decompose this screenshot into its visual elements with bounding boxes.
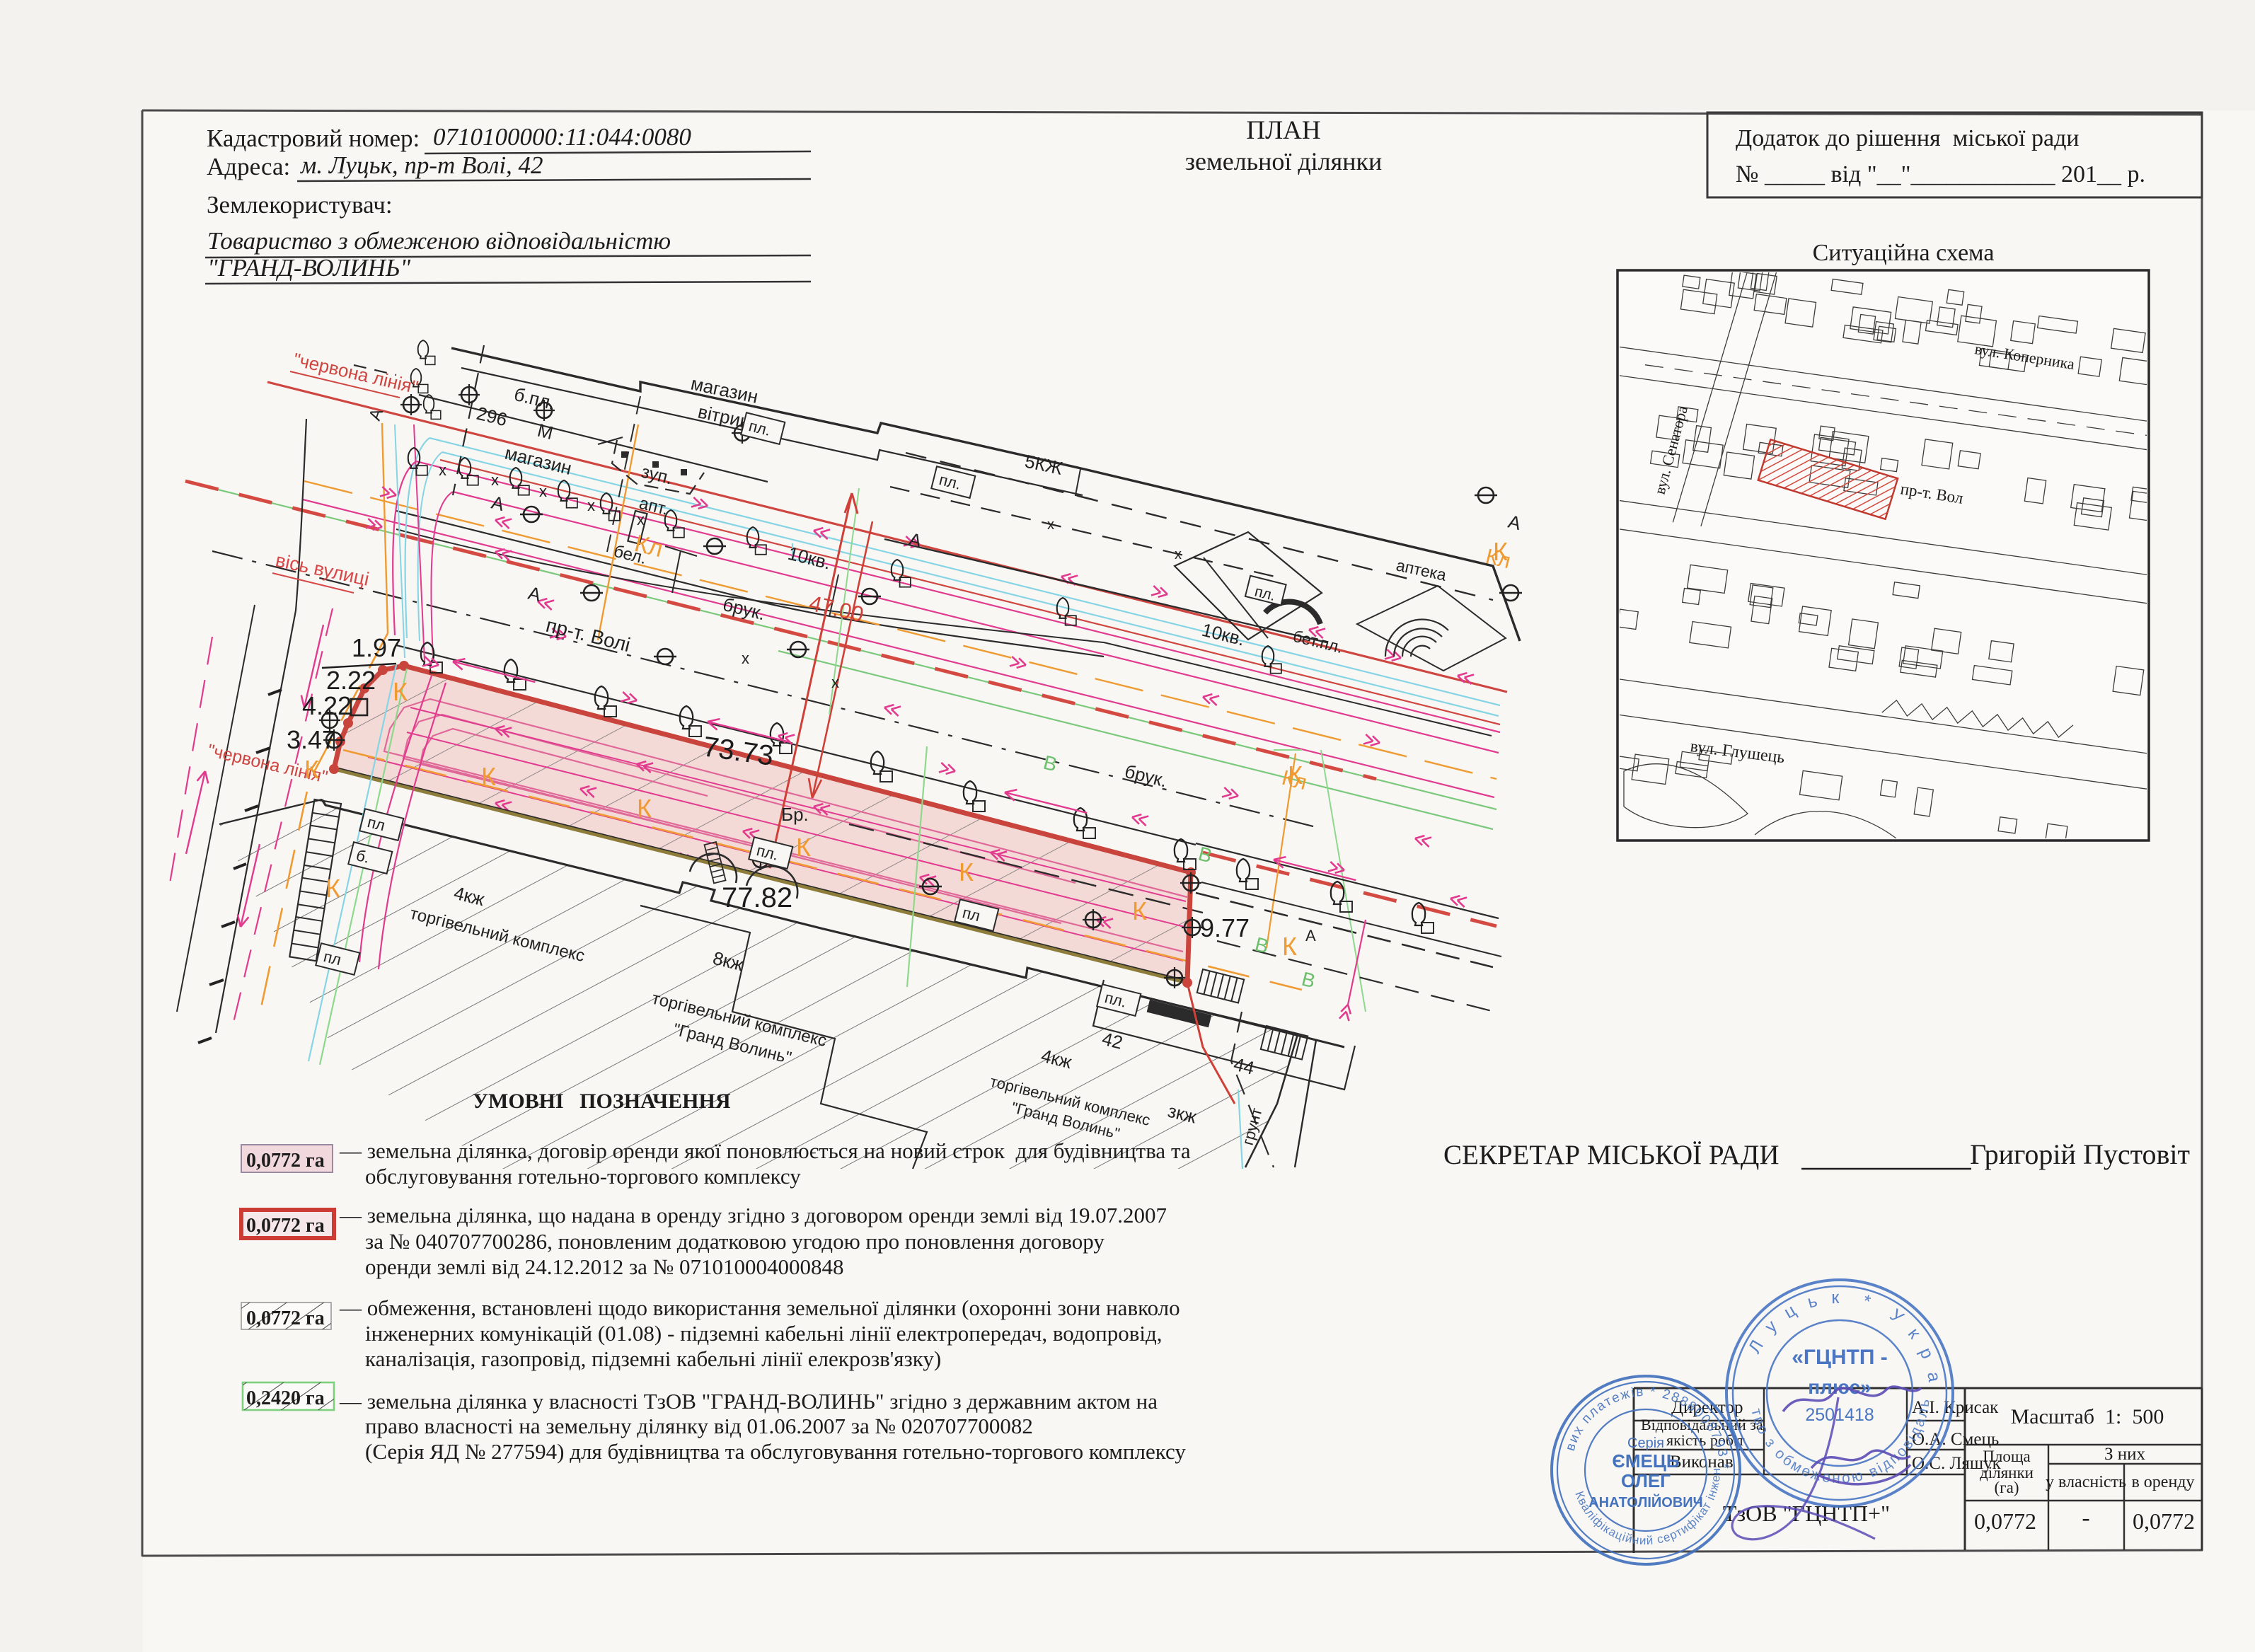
svg-text:Бр.: Бр.: [781, 804, 809, 825]
svg-text:х: х: [439, 461, 446, 479]
svg-text:77.82: 77.82: [722, 882, 792, 913]
svg-text:— обмеження, встановлені щодо: — обмеження, встановлені щодо використан…: [339, 1295, 1180, 1320]
svg-text:2501418: 2501418: [1805, 1405, 1874, 1425]
svg-text:Додаток до рішення міської ра: Додаток до рішення міської ради: [1736, 125, 2080, 151]
svg-text:0710100000:11:044:0080: 0710100000:11:044:0080: [433, 123, 691, 151]
svg-text:0,0772: 0,0772: [1974, 1508, 2036, 1534]
svg-text:"ГРАНД-ВОЛИНЬ": "ГРАНД-ВОЛИНЬ": [207, 254, 411, 282]
svg-text:0,0772 га: 0,0772 га: [246, 1307, 325, 1329]
svg-text:Площа: Площа: [1983, 1448, 2031, 1465]
svg-text:УМОВНІ ПОЗНАЧЕННЯ: УМОВНІ ПОЗНАЧЕННЯ: [473, 1090, 731, 1113]
svg-text:обслуговування готельно-торгов: обслуговування готельно-торгового компле…: [365, 1164, 801, 1189]
svg-text:х: х: [831, 674, 839, 691]
svg-text:— земельна ділянка, договір ор: — земельна ділянка, договір оренди якої …: [339, 1138, 1191, 1163]
svg-text:К: К: [637, 794, 652, 823]
svg-text:інженерних комунікацій (01.08): інженерних комунікацій (01.08) - підземн…: [365, 1321, 1163, 1346]
svg-text:за № 040707700286, поновленим: за № 040707700286, поновленим додатковою…: [365, 1229, 1105, 1254]
svg-text:Товариство з обмеженою відпові: Товариство з обмеженою відповідальністю: [207, 227, 671, 255]
svg-text:К: К: [959, 857, 974, 886]
svg-text:х: х: [1047, 517, 1054, 533]
svg-text:АНАТОЛІЙОВИЧ: АНАТОЛІЙОВИЧ: [1588, 1494, 1703, 1511]
svg-text:в оренду: в оренду: [2131, 1473, 2194, 1491]
svg-text:№ _____ від "__"____________ 2: № _____ від "__"____________ 201__ р.: [1736, 161, 2145, 187]
svg-text:(Серія ЯД № 277594) для будівн: (Серія ЯД № 277594) для будівництва та о…: [365, 1439, 1186, 1464]
svg-text:3.47: 3.47: [287, 725, 336, 754]
svg-text:0,0772 га: 0,0772 га: [246, 1215, 325, 1237]
svg-text:ОЛЕГ: ОЛЕГ: [1621, 1470, 1671, 1491]
svg-text:земельної ділянки: земельної ділянки: [1185, 147, 1382, 175]
svg-text:х: х: [742, 649, 749, 667]
svg-text:Масштаб 1: 500: Масштаб 1: 500: [2011, 1405, 2164, 1428]
svg-text:0,0772 га: 0,0772 га: [246, 1150, 325, 1172]
svg-text:оренди землі від 24.12.2012 за: оренди землі від 24.12.2012 за № 0710100…: [365, 1254, 844, 1279]
svg-text:К: К: [796, 833, 811, 862]
svg-text:х: х: [1175, 547, 1182, 562]
svg-text:х: х: [539, 483, 547, 500]
svg-text:у власність: у власність: [2046, 1473, 2126, 1491]
svg-text:м. Луцьк, пр-т Волі, 42: м. Луцьк, пр-т Волі, 42: [299, 151, 543, 179]
svg-text:Адреса:: Адреса:: [207, 153, 290, 180]
svg-text:право власності на земельну ді: право власності на земельну ділянку від …: [365, 1414, 1033, 1438]
svg-text:«ГЦНТП -: «ГЦНТП -: [1792, 1346, 1887, 1369]
svg-text:— земельна ділянка, що надана: — земельна ділянка, що надана в оренду з…: [339, 1203, 1167, 1228]
svg-text:Кадастровий номер:: Кадастровий номер:: [207, 125, 420, 152]
svg-text:К: К: [1282, 932, 1297, 961]
svg-text:О.А. Смець: О.А. Смець: [1912, 1430, 1999, 1449]
svg-text:х: х: [491, 471, 499, 489]
svg-text:Землекористувач:: Землекористувач:: [207, 191, 393, 219]
svg-text:Ситуаційна схема: Ситуаційна схема: [1813, 240, 1995, 266]
svg-text:2.22: 2.22: [326, 666, 376, 695]
svg-text:Григорій Пустовіт: Григорій Пустовіт: [1970, 1138, 2190, 1170]
svg-text:ЄМЕЦЬ: ЄМЕЦЬ: [1612, 1450, 1679, 1472]
svg-text:4.22: 4.22: [302, 691, 352, 720]
svg-text:З них: З них: [2104, 1445, 2146, 1464]
svg-text:Серія: Серія: [1627, 1436, 1664, 1451]
svg-text:К: К: [304, 755, 319, 784]
svg-text:А: А: [1305, 927, 1316, 945]
svg-text:ПЛАН: ПЛАН: [1246, 116, 1320, 145]
svg-text:— земельна ділянка у власності: — земельна ділянка у власності ТзОВ "ГРА…: [339, 1389, 1158, 1414]
svg-text:К: К: [393, 677, 408, 706]
svg-text:9.77: 9.77: [1200, 913, 1250, 942]
svg-text:К: К: [1132, 896, 1147, 925]
svg-text:0,2420 га: 0,2420 га: [246, 1387, 325, 1409]
svg-text:1.97: 1.97: [352, 633, 401, 662]
svg-text:0,0772: 0,0772: [2133, 1508, 2195, 1534]
svg-text:СЕКРЕТАР МІСЬКОЇ РАДИ: СЕКРЕТАР МІСЬКОЇ РАДИ: [1443, 1140, 1780, 1170]
svg-text:х: х: [587, 497, 595, 514]
svg-text:(га): (га): [1995, 1479, 2019, 1496]
svg-text:каналізація, газопровід, підзе: каналізація, газопровід, підземні кабель…: [365, 1346, 941, 1371]
svg-text:К: К: [325, 874, 340, 903]
svg-text:-: -: [2082, 1505, 2089, 1531]
svg-text:К: К: [481, 762, 496, 791]
